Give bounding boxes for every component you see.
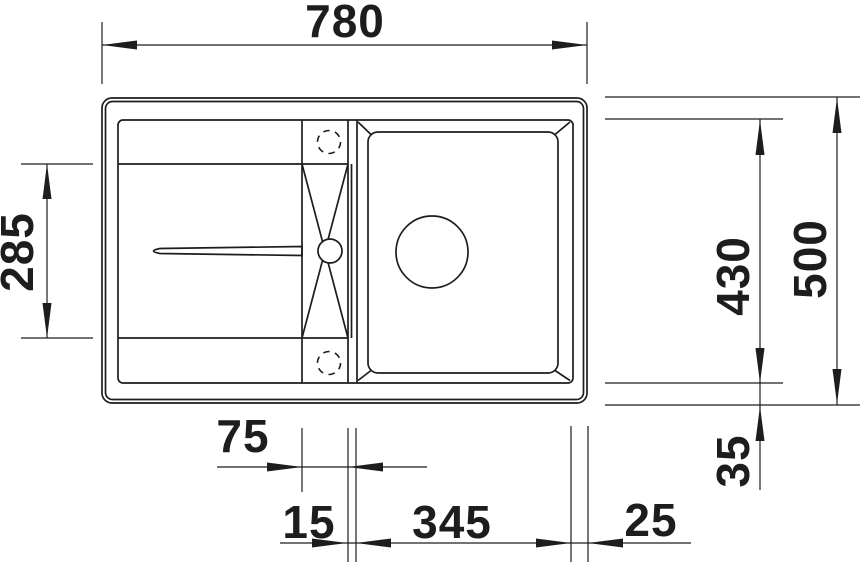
- arrowhead: [833, 98, 842, 133]
- arrowhead: [356, 539, 391, 548]
- arrowhead: [536, 539, 571, 548]
- drainboard: [118, 164, 348, 338]
- dim-label-strip-to-bowl-gap: 15: [282, 496, 335, 548]
- dim-label-bowl-section-depth: 430: [707, 236, 759, 316]
- drain-remote-knob: [318, 239, 342, 263]
- tap-hole-bottom: [318, 352, 341, 375]
- dim-label-bowl-to-bottom-edge: 35: [707, 434, 759, 487]
- drain-hole: [396, 216, 468, 288]
- bowl-chamfer-top-right: [555, 122, 570, 135]
- drainboard-runoff-groove: [154, 247, 303, 256]
- arrowhead: [756, 120, 765, 155]
- arrowhead: [756, 348, 765, 383]
- bowl-chamfer-bottom-right: [555, 371, 570, 381]
- dimension-overall-width: 780: [102, 0, 587, 84]
- arrowhead: [552, 41, 587, 50]
- arrowhead: [267, 463, 302, 472]
- dimension-right-side: 430 500 35: [605, 97, 860, 490]
- arrowhead: [102, 41, 137, 50]
- bowl-chamfer-top-left: [358, 122, 371, 135]
- dimension-drainer-depth: 285: [0, 164, 93, 338]
- dim-label-drainer-depth: 285: [0, 212, 43, 292]
- technical-drawing-canvas: 780 285 430 500: [0, 0, 862, 569]
- bowl-chamfer-bottom-left: [358, 371, 371, 381]
- arrowhead: [348, 463, 383, 472]
- arrowhead: [833, 369, 842, 404]
- bowl: [357, 120, 570, 383]
- tap-hole-top: [318, 131, 341, 154]
- dim-label-center-strip-width: 75: [216, 410, 269, 462]
- arrowhead: [43, 164, 52, 199]
- sink-technical-drawing: 780 285 430 500: [0, 0, 862, 569]
- arrowhead: [43, 303, 52, 338]
- arrowhead: [588, 539, 623, 548]
- dim-label-overall-depth: 500: [784, 219, 836, 299]
- dim-label-overall-width: 780: [305, 0, 385, 47]
- dim-label-bowl-to-right-edge: 25: [624, 494, 677, 546]
- dimension-center-strip-width: 75: [216, 410, 427, 492]
- dim-label-bowl-width: 345: [412, 496, 492, 548]
- center-strip: [302, 120, 352, 383]
- dimension-bottom-row: 15 345 25: [280, 426, 691, 562]
